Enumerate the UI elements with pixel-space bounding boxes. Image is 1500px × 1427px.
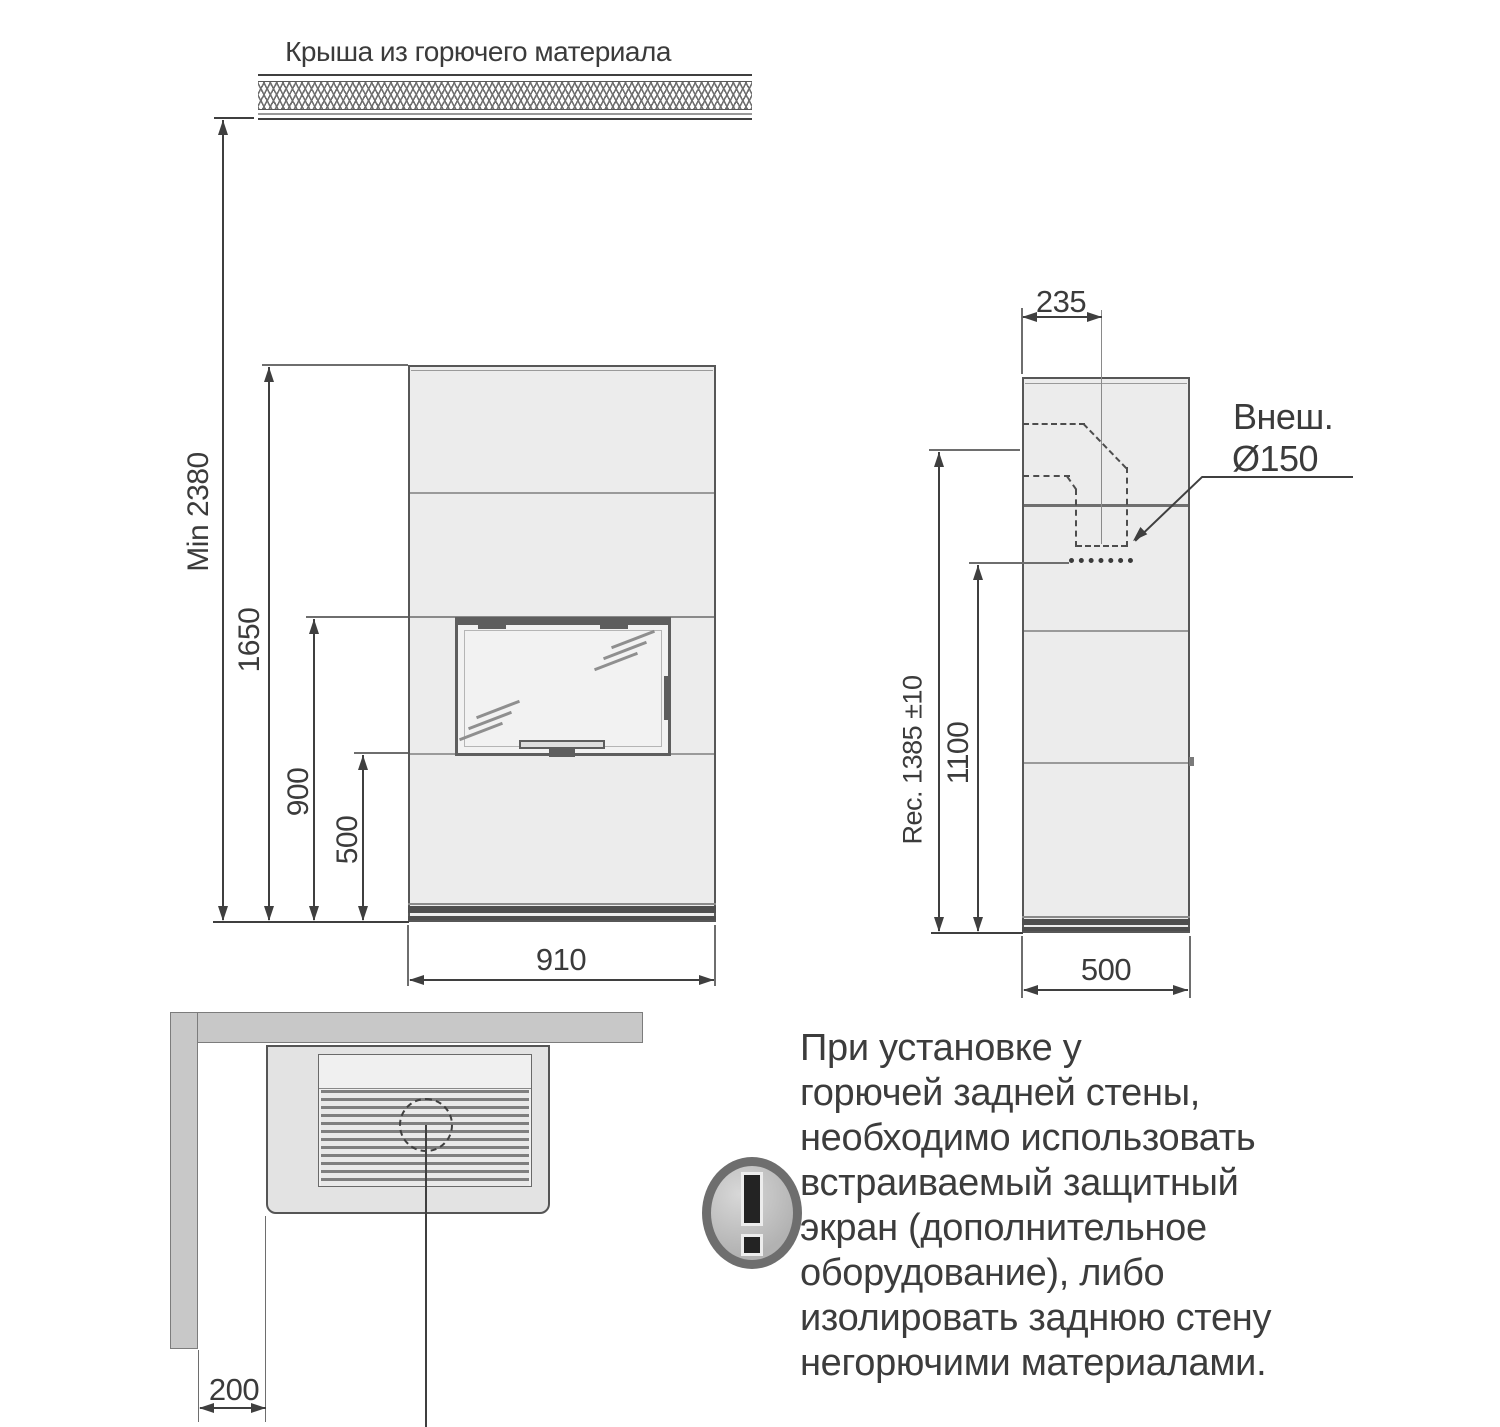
flue-dashed-top-horizontal xyxy=(1023,423,1085,425)
dim-1100-label: 1100 xyxy=(942,722,976,785)
dim-910-arrow-right xyxy=(699,975,714,985)
dim-235-arrow-right xyxy=(1087,312,1102,322)
glass-reflection-top-right xyxy=(593,634,673,676)
side-base-band-2 xyxy=(1022,927,1190,931)
dim-900-label: 900 xyxy=(282,768,316,817)
flue-dashed-collar-top xyxy=(1076,545,1127,547)
flue-collar-dotted xyxy=(1069,558,1133,563)
dim-1650-arrow-top xyxy=(264,367,274,382)
dim-1100-arrow-top xyxy=(973,565,983,580)
dim-910-arrow-left xyxy=(409,975,424,985)
top-view-centerline xyxy=(425,1125,427,1427)
top-view-side-wall xyxy=(170,1012,198,1349)
top-view-plate-divider xyxy=(319,1088,531,1089)
front-base-band-2 xyxy=(408,916,716,920)
top-view-rear-wall xyxy=(170,1012,643,1043)
side-view-notch xyxy=(1189,757,1194,766)
dim-min2380-line xyxy=(222,120,224,920)
side-view-divider-low xyxy=(1024,762,1188,764)
flue-dashed-left-vertical xyxy=(1075,489,1077,547)
side-base-line xyxy=(1022,916,1190,918)
dim-min2380-arrow-bottom xyxy=(218,906,228,921)
dim-1650-arrow-bottom xyxy=(264,906,274,921)
dim-500s-arrow-left xyxy=(1023,985,1038,995)
side-view-stove-body xyxy=(1022,377,1190,933)
flue-dashed-bottom-horizontal xyxy=(1023,475,1070,477)
dim-200-extension-stove xyxy=(265,1216,266,1422)
dim-rec1385-arrow-bottom xyxy=(934,917,944,932)
dim-rec1385-tick xyxy=(929,449,1020,451)
front-base-line xyxy=(408,903,716,905)
flue-centerline xyxy=(1101,310,1102,544)
flue-leader-horizontal xyxy=(1202,476,1353,478)
dim-rec1385-line xyxy=(938,452,940,931)
dim-1100-line xyxy=(977,565,979,931)
door-latch xyxy=(664,676,668,720)
dim-rec1385-label: Rec. 1385 ±10 xyxy=(898,676,929,845)
dim-1100-arrow-bottom xyxy=(973,917,983,932)
roof-line-bottom xyxy=(258,118,752,120)
dim-500s-label: 500 xyxy=(1081,952,1131,988)
exclamation-bar xyxy=(744,1175,760,1223)
dim-min2380-tick xyxy=(214,117,254,119)
door-hinge-right xyxy=(600,625,628,629)
dim-900-arrow-top xyxy=(309,619,319,634)
dim-900-arrow-bottom xyxy=(309,906,319,921)
flue-diameter-label-line2: Ø150 xyxy=(1232,438,1318,480)
dim-1100-tick xyxy=(969,562,1069,564)
dim-500s-extension-right xyxy=(1189,936,1191,998)
roof-line-top xyxy=(258,74,752,76)
flue-dashed-right-vertical xyxy=(1126,467,1128,547)
dim-1650-label: 1650 xyxy=(233,608,267,673)
dim-235-label: 235 xyxy=(1036,284,1086,320)
dim-900-extension xyxy=(306,616,408,618)
dim-rec1385-arrow-top xyxy=(934,452,944,467)
dim-1650-extension xyxy=(262,364,408,366)
dim-min2380-arrow-top xyxy=(218,120,228,135)
door-handle xyxy=(519,740,605,749)
dim-910-line xyxy=(410,979,714,981)
dim-500s-arrow-right xyxy=(1173,985,1188,995)
door-handle-tab xyxy=(549,749,575,757)
dim-min2380-label: Min 2380 xyxy=(182,452,216,571)
roof-line-mid xyxy=(258,113,752,115)
installation-diagram: Крыша из горючего материала Min 2380 165… xyxy=(0,0,1500,1427)
front-base-band-1 xyxy=(408,906,716,913)
side-view-divider-dark xyxy=(1024,504,1188,507)
door-top-bar xyxy=(455,617,671,625)
side-floor-line xyxy=(931,932,1023,934)
dim-235-arrow-left xyxy=(1022,312,1037,322)
dim-500f-arrow-top xyxy=(358,755,368,770)
dim-910-label: 910 xyxy=(536,942,586,978)
dim-500f-arrow-bottom xyxy=(358,906,368,921)
side-view-top-cap-line xyxy=(1025,383,1187,384)
front-view-top-cap-line xyxy=(411,370,713,371)
roof-hatch-strip xyxy=(258,81,752,110)
side-base-band-1 xyxy=(1022,919,1190,925)
dim-500f-label: 500 xyxy=(331,816,365,865)
dim-910-extension-right xyxy=(714,925,716,986)
dim-500f-extension xyxy=(354,752,408,754)
exclamation-dot xyxy=(744,1237,760,1253)
flue-diameter-label-line1: Внеш. xyxy=(1233,396,1333,438)
roof-label: Крыша из горючего материала xyxy=(285,36,671,68)
dim-500s-line xyxy=(1024,989,1188,991)
side-view-divider-mid xyxy=(1024,630,1188,632)
front-floor-line xyxy=(213,921,409,923)
front-view-divider-upper xyxy=(410,492,714,494)
warning-text: При установке у горючей задней стены, не… xyxy=(800,1026,1360,1386)
exclamation-icon xyxy=(702,1157,802,1269)
door-hinge-left xyxy=(478,625,506,629)
dim-200-label: 200 xyxy=(209,1372,259,1408)
dim-1650-line xyxy=(268,367,270,920)
